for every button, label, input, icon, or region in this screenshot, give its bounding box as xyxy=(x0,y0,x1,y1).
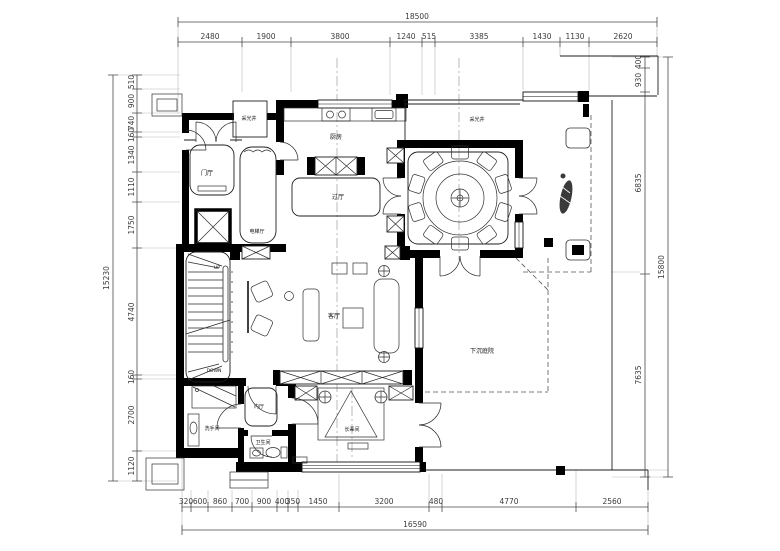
room-label-sunken-courtyard: 下沉庭院 xyxy=(470,347,494,355)
dim-top-seg-7: 1130 xyxy=(565,32,584,41)
dimension-chain-top: 18500 2480 1900 3800 1240 515 3385 1430 … xyxy=(178,12,657,47)
entry-door-left-leaf xyxy=(196,122,216,142)
bedroom-terrace-door-top xyxy=(419,403,441,425)
dim-right-seg-1: 930 xyxy=(634,73,643,88)
dim-left-seg-8: 160 xyxy=(127,370,136,385)
site-boundary xyxy=(425,56,658,490)
washroom-sink xyxy=(188,414,199,446)
crossed-boxes xyxy=(242,148,413,400)
shrub xyxy=(557,174,575,215)
dim-right-seg-0: 400 xyxy=(634,55,643,70)
bathroom-sink xyxy=(250,448,263,458)
armchair xyxy=(250,280,273,303)
dim-top-seg-0: 2480 xyxy=(200,32,219,41)
window-living-right xyxy=(415,308,423,348)
stair-up-label: UP xyxy=(214,265,220,271)
dim-left-seg-5: 1110 xyxy=(127,177,136,196)
room-label-bathroom: 卫生间 xyxy=(255,439,270,446)
kitchen-door xyxy=(280,142,298,160)
dim-top-total: 18500 xyxy=(405,12,429,21)
room-label-washroom: 洗手间 xyxy=(204,425,219,432)
dining-south-door-left xyxy=(440,256,460,276)
window-top-right-wall xyxy=(523,92,578,101)
room-label-entry-hall: 门厅 xyxy=(201,169,213,177)
dim-bottom-total: 16590 xyxy=(403,520,427,529)
side-table xyxy=(353,263,367,274)
dim-left-seg-0: 510 xyxy=(127,75,136,90)
window-kitchen-top xyxy=(318,100,392,108)
dim-right-seg-3: 7635 xyxy=(634,365,643,384)
dim-bottom-seg-10: 4770 xyxy=(499,497,518,506)
dimension-chain-left: 15230 510 900 740 160 1340 1110 1750 474… xyxy=(102,75,142,481)
dim-top-seg-1: 1900 xyxy=(256,32,275,41)
kitchen-fixtures xyxy=(284,108,406,121)
dining-table-set xyxy=(408,146,512,250)
dim-bottom-seg-0: 320 xyxy=(179,497,194,506)
bedroom-terrace-door-bottom xyxy=(419,425,441,447)
bedroom-door xyxy=(292,398,318,424)
dim-bottom-seg-2: 860 xyxy=(213,497,228,506)
nightstand xyxy=(375,391,387,403)
dim-bottom-seg-9: 480 xyxy=(429,497,444,506)
dim-bottom-seg-3: 700 xyxy=(235,497,250,506)
living-furniture xyxy=(248,263,399,363)
dining-right-door-top xyxy=(519,178,537,196)
stair-down-label: DOWN xyxy=(207,368,222,374)
dim-right-total: 15800 xyxy=(657,255,666,279)
side-table xyxy=(332,263,347,274)
floor-plan-canvas: UP DOWN xyxy=(0,0,780,551)
room-label-skylight-right: 采光井 xyxy=(469,116,484,123)
dim-left-seg-1: 900 xyxy=(127,94,136,109)
room-label-skylight-left: 采光井 xyxy=(241,115,256,122)
dim-left-total: 15230 xyxy=(102,266,111,290)
room-label-kitchen: 厨房 xyxy=(330,133,342,141)
dim-left-seg-3: 160 xyxy=(127,128,136,143)
dim-left-seg-10: 1120 xyxy=(127,456,136,475)
dim-bottom-seg-1: 600 xyxy=(193,497,208,506)
washroom-fixtures xyxy=(188,386,236,446)
dining-left-door-top xyxy=(383,178,401,196)
dining-south-door-right xyxy=(460,256,480,276)
dim-bottom-seg-11: 2560 xyxy=(602,497,621,506)
washroom-door xyxy=(217,404,241,428)
dim-left-seg-6: 1750 xyxy=(127,215,136,234)
bed-bench xyxy=(348,443,368,449)
skylight-right-outline xyxy=(405,100,523,140)
room-label-inner-hall: 内厅 xyxy=(254,403,264,410)
kitchen-sink xyxy=(372,108,396,121)
dim-left-seg-9: 2700 xyxy=(127,405,136,424)
room-label-living-room: 客厅 xyxy=(328,312,340,320)
walls xyxy=(176,91,589,475)
round-end-table xyxy=(379,266,390,277)
dim-top-seg-3: 1240 xyxy=(396,32,415,41)
dim-bottom-seg-8: 3200 xyxy=(374,497,393,506)
window-dining-right xyxy=(515,222,523,248)
dining-left-door-bottom xyxy=(383,196,401,214)
armchair xyxy=(250,314,273,337)
dim-top-seg-2: 3800 xyxy=(330,32,349,41)
toilet-bowl xyxy=(266,448,280,458)
dim-top-seg-6: 1430 xyxy=(532,32,551,41)
nightstand xyxy=(319,391,331,403)
windows xyxy=(302,92,578,472)
coffee-table xyxy=(343,308,363,328)
room-label-passage-hall: 过厅 xyxy=(332,193,344,201)
kitchen-counter xyxy=(284,108,406,121)
window-bedroom-bottom xyxy=(302,462,420,472)
dim-left-seg-7: 4740 xyxy=(127,302,136,321)
dim-bottom-seg-6: 350 xyxy=(286,497,301,506)
side-table xyxy=(285,292,294,301)
dim-bottom-seg-4: 900 xyxy=(257,497,272,506)
planter xyxy=(566,240,590,260)
dim-top-seg-4: 515 xyxy=(422,32,437,41)
dim-right-seg-2: 6835 xyxy=(634,173,643,192)
bench xyxy=(303,289,319,341)
dimension-chain-bottom: 320 600 860 700 900 400 350 1450 3200 48… xyxy=(179,497,648,535)
dining-right-door-bottom xyxy=(519,196,537,214)
dimension-chain-right: 400 930 6835 7635 15800 xyxy=(634,55,673,477)
planter xyxy=(566,128,590,148)
dim-bottom-seg-7: 1450 xyxy=(308,497,327,506)
room-label-elders-room: 长辈间 xyxy=(344,426,359,433)
round-end-table xyxy=(379,352,390,363)
staircase: UP DOWN xyxy=(186,252,233,382)
dim-top-seg-5: 3385 xyxy=(469,32,488,41)
floor-plan-drawing: UP DOWN xyxy=(0,0,780,551)
dim-left-seg-4: 1340 xyxy=(127,145,136,164)
dining-room xyxy=(405,100,523,250)
toilet-tank xyxy=(281,447,287,458)
room-label-elevator-hall: 电梯厅 xyxy=(249,228,264,235)
dim-top-seg-8: 2620 xyxy=(613,32,632,41)
sofa xyxy=(374,279,399,353)
elevator-shaft xyxy=(196,210,230,244)
